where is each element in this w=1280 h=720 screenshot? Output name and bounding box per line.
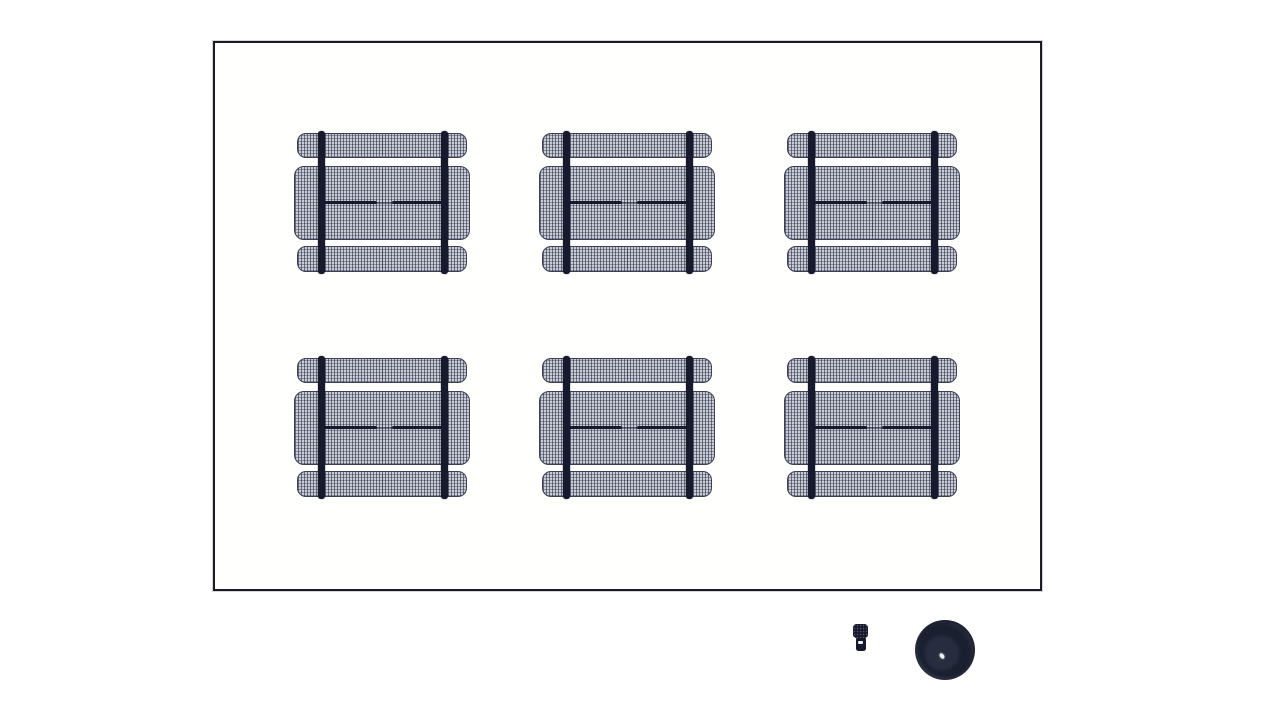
table-frame-left-bar	[808, 356, 815, 499]
tabletop-seam-left	[568, 426, 622, 429]
trash-can[interactable]	[915, 620, 975, 680]
tabletop-seam-left	[813, 426, 867, 429]
tabletop-seam-right	[882, 201, 936, 204]
bench-center-seam	[872, 249, 873, 269]
table-frame-left-bar	[318, 131, 325, 274]
tabletop-seam-left	[323, 201, 377, 204]
tabletop-seam-left	[323, 426, 377, 429]
tabletop-seam-right	[637, 426, 691, 429]
table-frame-left-bar	[318, 356, 325, 499]
pedestal-grill[interactable]	[853, 624, 868, 651]
bench-center-seam	[382, 474, 383, 494]
bench-center-seam	[872, 136, 873, 155]
grill-slot	[858, 641, 863, 645]
table-frame-left-bar	[808, 131, 815, 274]
tabletop-seam-right	[392, 426, 446, 429]
bench-center-seam	[627, 474, 628, 494]
site-boundary-rectangle	[213, 41, 1042, 591]
table-frame-right-bar	[686, 131, 693, 274]
table-frame-left-bar	[563, 356, 570, 499]
table-frame-left-bar	[563, 131, 570, 274]
bench-center-seam	[872, 474, 873, 494]
tabletop-seam-right	[637, 201, 691, 204]
bench-center-seam	[627, 136, 628, 155]
table-frame-right-bar	[441, 356, 448, 499]
bench-center-seam	[627, 361, 628, 380]
bench-center-seam	[872, 361, 873, 380]
table-frame-right-bar	[441, 131, 448, 274]
bench-center-seam	[382, 361, 383, 380]
trash-can-highlight	[939, 652, 946, 659]
grill-grate-icon	[853, 624, 868, 638]
table-frame-right-bar	[686, 356, 693, 499]
tabletop-seam-left	[813, 201, 867, 204]
site-plan-canvas	[0, 0, 1280, 720]
bench-center-seam	[627, 249, 628, 269]
picnic-table[interactable]	[784, 358, 960, 497]
picnic-table[interactable]	[294, 358, 470, 497]
table-frame-right-bar	[931, 356, 938, 499]
tabletop-seam-left	[568, 201, 622, 204]
picnic-table[interactable]	[539, 358, 715, 497]
picnic-table[interactable]	[294, 133, 470, 272]
table-frame-right-bar	[931, 131, 938, 274]
picnic-table[interactable]	[784, 133, 960, 272]
tabletop-seam-right	[392, 201, 446, 204]
bench-center-seam	[382, 136, 383, 155]
picnic-table[interactable]	[539, 133, 715, 272]
tabletop-seam-right	[882, 426, 936, 429]
bench-center-seam	[382, 249, 383, 269]
